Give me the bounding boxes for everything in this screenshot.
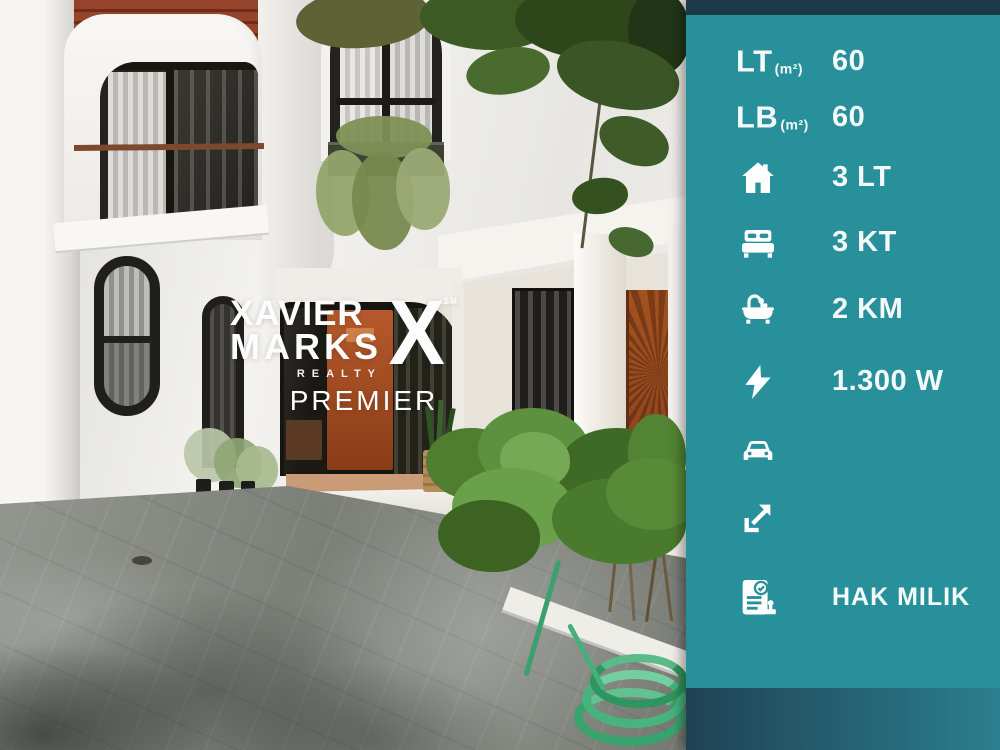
label-text: LB bbox=[736, 99, 778, 134]
building-area-label: LB(m²) bbox=[736, 99, 809, 135]
brand-premier: PREMIER bbox=[230, 385, 498, 417]
brand-realty: REALTY bbox=[297, 368, 382, 380]
window-bar bbox=[104, 336, 150, 343]
building-area-value: 60 bbox=[832, 101, 865, 134]
panel-bottom-strip bbox=[686, 688, 1000, 750]
property-info-panel: LT(m²) 60 LB(m²) 60 3 LT 3 KT 2 KM bbox=[686, 0, 1000, 750]
direction-row bbox=[686, 493, 1000, 541]
bathrooms-value: 2 KM bbox=[832, 293, 903, 326]
land-area-row: LT(m²) 60 bbox=[686, 38, 1000, 86]
brand-x-mark: X SM bbox=[388, 296, 444, 371]
bedrooms-value: 3 KT bbox=[832, 226, 897, 259]
bedrooms-row: 3 KT bbox=[686, 219, 1000, 267]
window-transom bbox=[336, 98, 436, 105]
car-icon bbox=[738, 430, 778, 470]
floors-row: 3 LT bbox=[686, 154, 1000, 202]
power-value: 1.300 W bbox=[832, 365, 944, 398]
service-mark: SM bbox=[444, 298, 458, 305]
logo-wordmark: XAVIER MARKS REALTY bbox=[230, 296, 382, 380]
pill-window bbox=[94, 256, 160, 416]
house-photo: XAVIER MARKS REALTY X SM PREMIER bbox=[0, 0, 686, 750]
building-area-row: LB(m²) 60 bbox=[686, 94, 1000, 142]
direction-arrow-icon bbox=[738, 497, 778, 537]
panel-top-strip bbox=[686, 0, 1000, 15]
bathrooms-row: 2 KM bbox=[686, 286, 1000, 334]
xavier-marks-logo: XAVIER MARKS REALTY X SM PREMIER bbox=[230, 296, 498, 428]
hanging-plant bbox=[396, 148, 450, 230]
land-area-value: 60 bbox=[832, 45, 865, 78]
land-area-label: LT(m²) bbox=[736, 43, 803, 79]
balcony-window bbox=[100, 62, 258, 220]
floors-value: 3 LT bbox=[832, 161, 891, 194]
floor-drain bbox=[132, 556, 152, 565]
lightning-icon bbox=[738, 362, 778, 402]
curved-pillar bbox=[258, 0, 334, 300]
certificate-icon bbox=[735, 575, 781, 621]
certificate-value: HAK MILIK bbox=[832, 583, 970, 612]
house-icon bbox=[738, 158, 778, 198]
unit-text: (m²) bbox=[775, 60, 803, 76]
carport-row bbox=[686, 426, 1000, 474]
listing-image: XAVIER MARKS REALTY X SM PREMIER LT(m²) … bbox=[0, 0, 1000, 750]
label-text: LT bbox=[736, 43, 773, 78]
bed-icon bbox=[738, 223, 778, 263]
power-row: 1.300 W bbox=[686, 358, 1000, 406]
bath-icon bbox=[738, 290, 778, 330]
certificate-row: HAK MILIK bbox=[686, 570, 1000, 626]
window-mullion bbox=[166, 62, 174, 220]
x-letter: X bbox=[388, 282, 444, 384]
hose-loop bbox=[590, 654, 686, 708]
logo-row: XAVIER MARKS REALTY X SM bbox=[230, 296, 498, 380]
unit-text: (m²) bbox=[780, 116, 808, 132]
brand-line2: MARKS bbox=[230, 329, 382, 365]
window-frame bbox=[100, 62, 258, 70]
